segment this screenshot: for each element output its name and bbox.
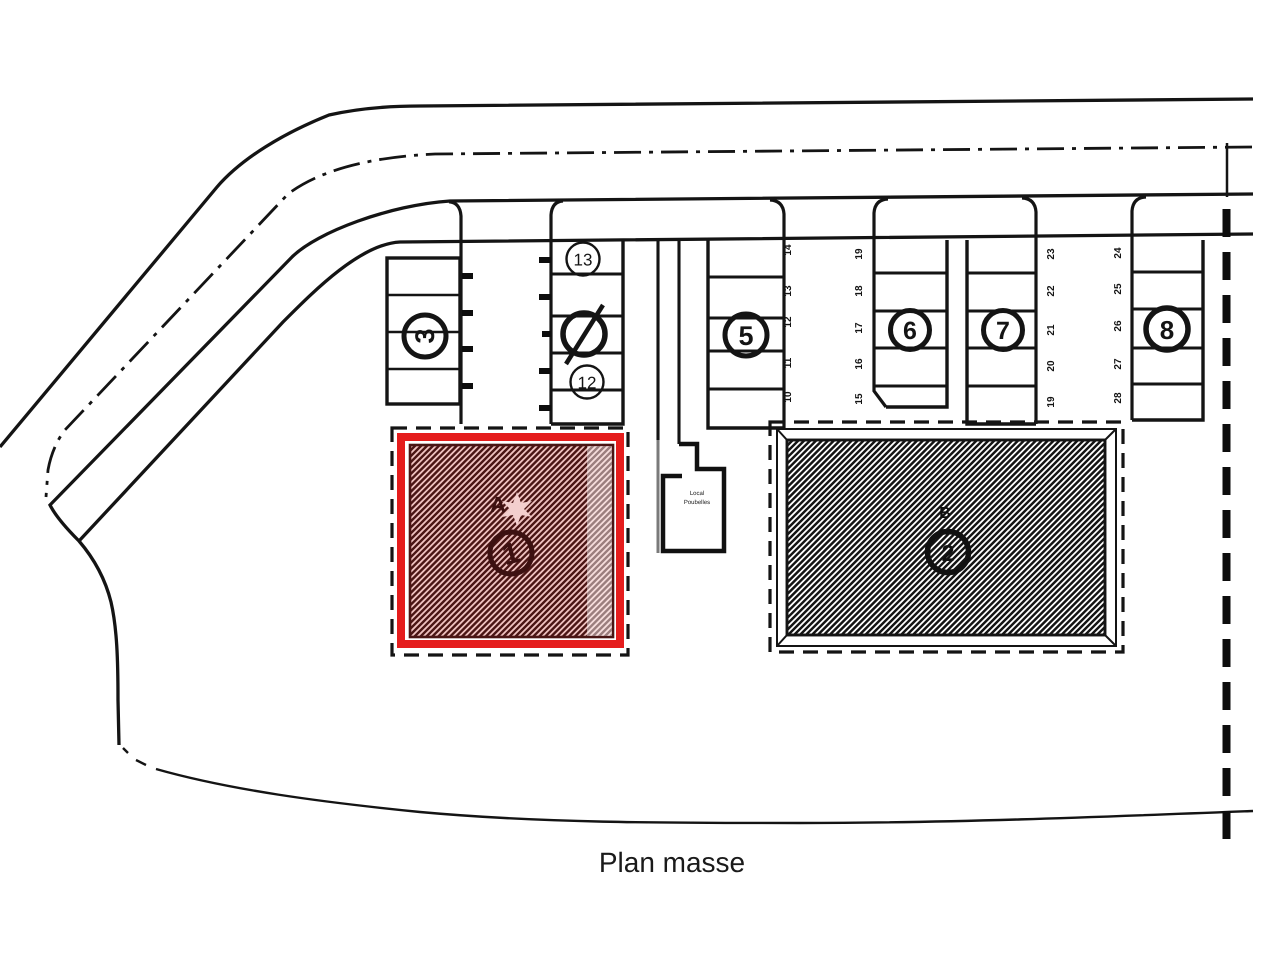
- svg-text:14: 14: [783, 244, 794, 256]
- svg-text:10: 10: [783, 391, 794, 403]
- svg-text:28: 28: [1113, 392, 1124, 404]
- svg-text:17: 17: [854, 322, 865, 334]
- svg-text:24: 24: [1113, 247, 1124, 259]
- svg-text:21: 21: [1046, 324, 1057, 336]
- svg-text:13: 13: [783, 285, 794, 297]
- svg-text:20: 20: [1046, 360, 1057, 372]
- svg-text:Local: Local: [690, 490, 704, 497]
- svg-text:16: 16: [854, 358, 865, 370]
- svg-text:26: 26: [1113, 320, 1124, 332]
- svg-text:18: 18: [854, 285, 865, 297]
- svg-text:23: 23: [1046, 248, 1057, 260]
- svg-text:Poubelles: Poubelles: [684, 499, 710, 506]
- svg-text:27: 27: [1113, 358, 1124, 370]
- svg-text:2: 2: [942, 540, 955, 566]
- svg-text:12: 12: [783, 316, 794, 328]
- svg-text:25: 25: [1113, 283, 1124, 295]
- svg-text:8: 8: [1160, 315, 1174, 345]
- svg-text:6: 6: [903, 317, 917, 345]
- svg-text:13: 13: [574, 251, 593, 270]
- svg-text:7: 7: [996, 317, 1010, 345]
- svg-text:22: 22: [1046, 285, 1057, 297]
- svg-text:19: 19: [1046, 396, 1057, 408]
- svg-text:19: 19: [854, 248, 865, 260]
- svg-text:12: 12: [578, 374, 597, 393]
- svg-text:11: 11: [783, 357, 794, 368]
- svg-text:15: 15: [854, 393, 865, 405]
- svg-text:A: A: [490, 492, 506, 517]
- svg-text:3: 3: [410, 328, 440, 343]
- svg-text:B: B: [939, 505, 951, 522]
- svg-text:Plan masse: Plan masse: [599, 847, 745, 878]
- svg-text:5: 5: [738, 321, 753, 351]
